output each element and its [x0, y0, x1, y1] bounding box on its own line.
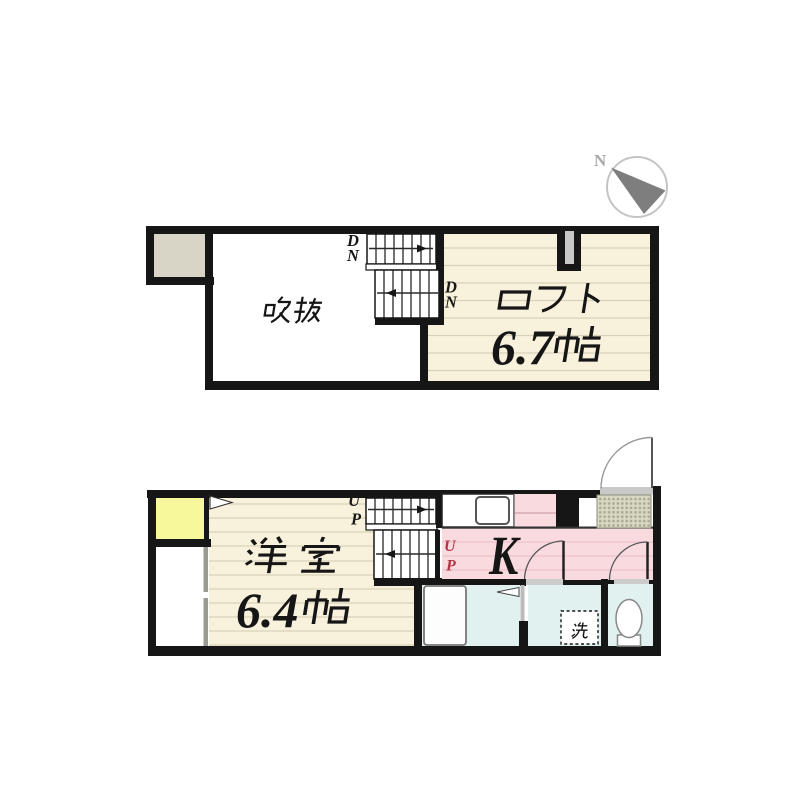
svg-text:6.7: 6.7: [491, 319, 556, 375]
svg-text:P: P: [350, 510, 362, 529]
svg-text:N: N: [346, 246, 360, 265]
svg-text:P: P: [445, 558, 456, 575]
svg-text:U: U: [444, 538, 457, 555]
svg-text:6.4: 6.4: [236, 582, 299, 638]
svg-text:K: K: [488, 525, 521, 586]
svg-text:N: N: [594, 151, 607, 170]
svg-text:U: U: [348, 491, 361, 510]
svg-text:N: N: [444, 293, 458, 312]
